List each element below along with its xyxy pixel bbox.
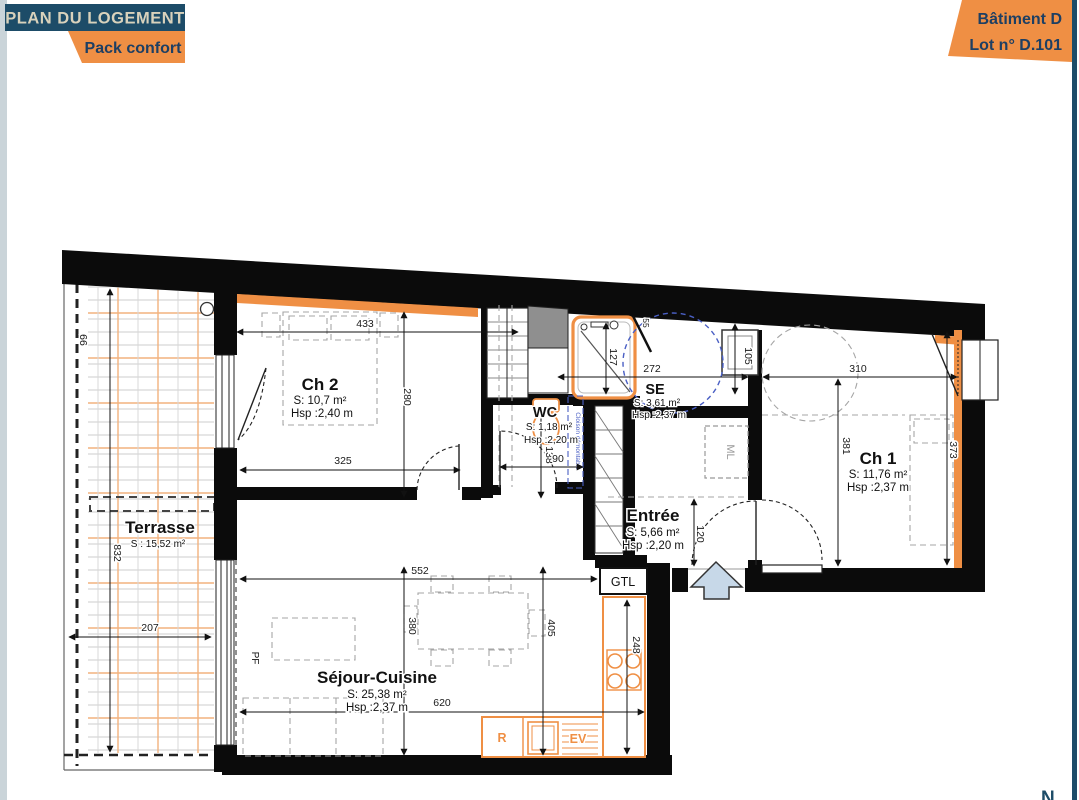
door-ch1-swing: [762, 500, 822, 560]
room-se-area: S: 3,61 m²: [634, 398, 681, 409]
room-sejour-height: Hsp :2,37 m: [346, 702, 408, 714]
dim-620: 620: [433, 697, 451, 709]
dim-55: 55: [641, 318, 651, 328]
dim-380: 380: [406, 617, 418, 635]
room-ch2-area: S: 10,7 m²: [293, 395, 346, 407]
room-wc-area: S: 1,18 m²: [526, 422, 573, 433]
door-ch2: [417, 446, 459, 490]
page-left-border: [0, 0, 7, 800]
room-sejour-name: Séjour-Cuisine: [317, 668, 437, 687]
dim-325: 325: [334, 455, 352, 467]
dim-832: 832: [111, 544, 123, 562]
shower-head-icon: [581, 324, 587, 330]
room-terrasse-area: S : 15,52 m²: [131, 539, 186, 550]
fridge-label: R: [497, 731, 506, 745]
ml-label: ML: [724, 444, 736, 459]
pf-label: PF: [249, 652, 260, 665]
turning-circle-ch1: [762, 325, 858, 421]
room-entree-area: S: 5,66 m²: [626, 527, 679, 539]
duct-shaft: [528, 306, 568, 352]
dim-373: 373: [947, 441, 959, 459]
page-right-border: [1072, 0, 1077, 800]
lot-label: Lot n° D.101: [969, 37, 1062, 54]
entrance-arrow-icon: [691, 562, 742, 599]
kitchen: R EV: [482, 597, 645, 757]
room-wc-name: WC: [533, 405, 558, 421]
dim-105: 105: [742, 347, 754, 365]
wall-kitchen-right: [647, 563, 670, 757]
sink-label: EV: [570, 732, 587, 746]
floor-plan-page: PLAN DU LOGEMENT Pack confort Bâtiment D…: [0, 0, 1079, 800]
plan-title: PLAN DU LOGEMENT: [5, 10, 184, 28]
pack-label: Pack confort: [85, 40, 183, 57]
room-entree-name: Entrée: [627, 506, 680, 525]
dim-127: 127: [607, 348, 619, 366]
dining-table: [418, 593, 528, 649]
room-ch1-height: Hsp :2,37 m: [847, 482, 909, 494]
dim-310: 310: [849, 363, 867, 375]
room-sejour-area: S: 25,38 m²: [347, 689, 407, 701]
batiment-label: Bâtiment D: [978, 11, 1062, 28]
room-ch1-area: S: 11,76 m²: [849, 469, 908, 481]
shower: [573, 317, 635, 398]
room-se-name: SE: [645, 382, 665, 398]
dim-207: 207: [141, 622, 159, 634]
dim-280: 280: [401, 388, 413, 406]
dim-248: 248: [630, 636, 642, 654]
dim-120: 120: [694, 525, 706, 543]
room-se-height: Hsp :2,37 m: [632, 410, 686, 421]
window-ch2-terrace: [216, 355, 234, 448]
dim-381: 381: [840, 437, 852, 455]
room-ch2-name: Ch 2: [302, 375, 339, 394]
room-terrasse-name: Terrasse: [125, 518, 195, 537]
dim-405: 405: [545, 619, 557, 637]
door-ch1-leaf: [762, 565, 822, 573]
north-indicator: N: [1041, 788, 1055, 800]
room-entree-height: Hsp :2,20 m: [622, 540, 684, 552]
linen-closet: [595, 406, 623, 553]
floor-plan-drawing: PLAN DU LOGEMENT Pack confort Bâtiment D…: [0, 0, 1079, 800]
room-ch2-height: Hsp :2,40 m: [291, 408, 353, 420]
gtl-label: GTL: [611, 575, 635, 589]
dim-552: 552: [411, 565, 429, 577]
room-ch1-name: Ch 1: [860, 449, 897, 468]
room-wc-height: Hsp :2,20 m: [524, 435, 578, 446]
sofa: [272, 618, 355, 660]
dim-90: 90: [552, 453, 564, 465]
dim-272: 272: [643, 363, 661, 375]
dim-433: 433: [356, 318, 374, 330]
column-symbol: [201, 303, 214, 316]
header: PLAN DU LOGEMENT Pack confort Bâtiment D…: [5, 0, 1072, 63]
dim-66: 66: [77, 334, 89, 346]
